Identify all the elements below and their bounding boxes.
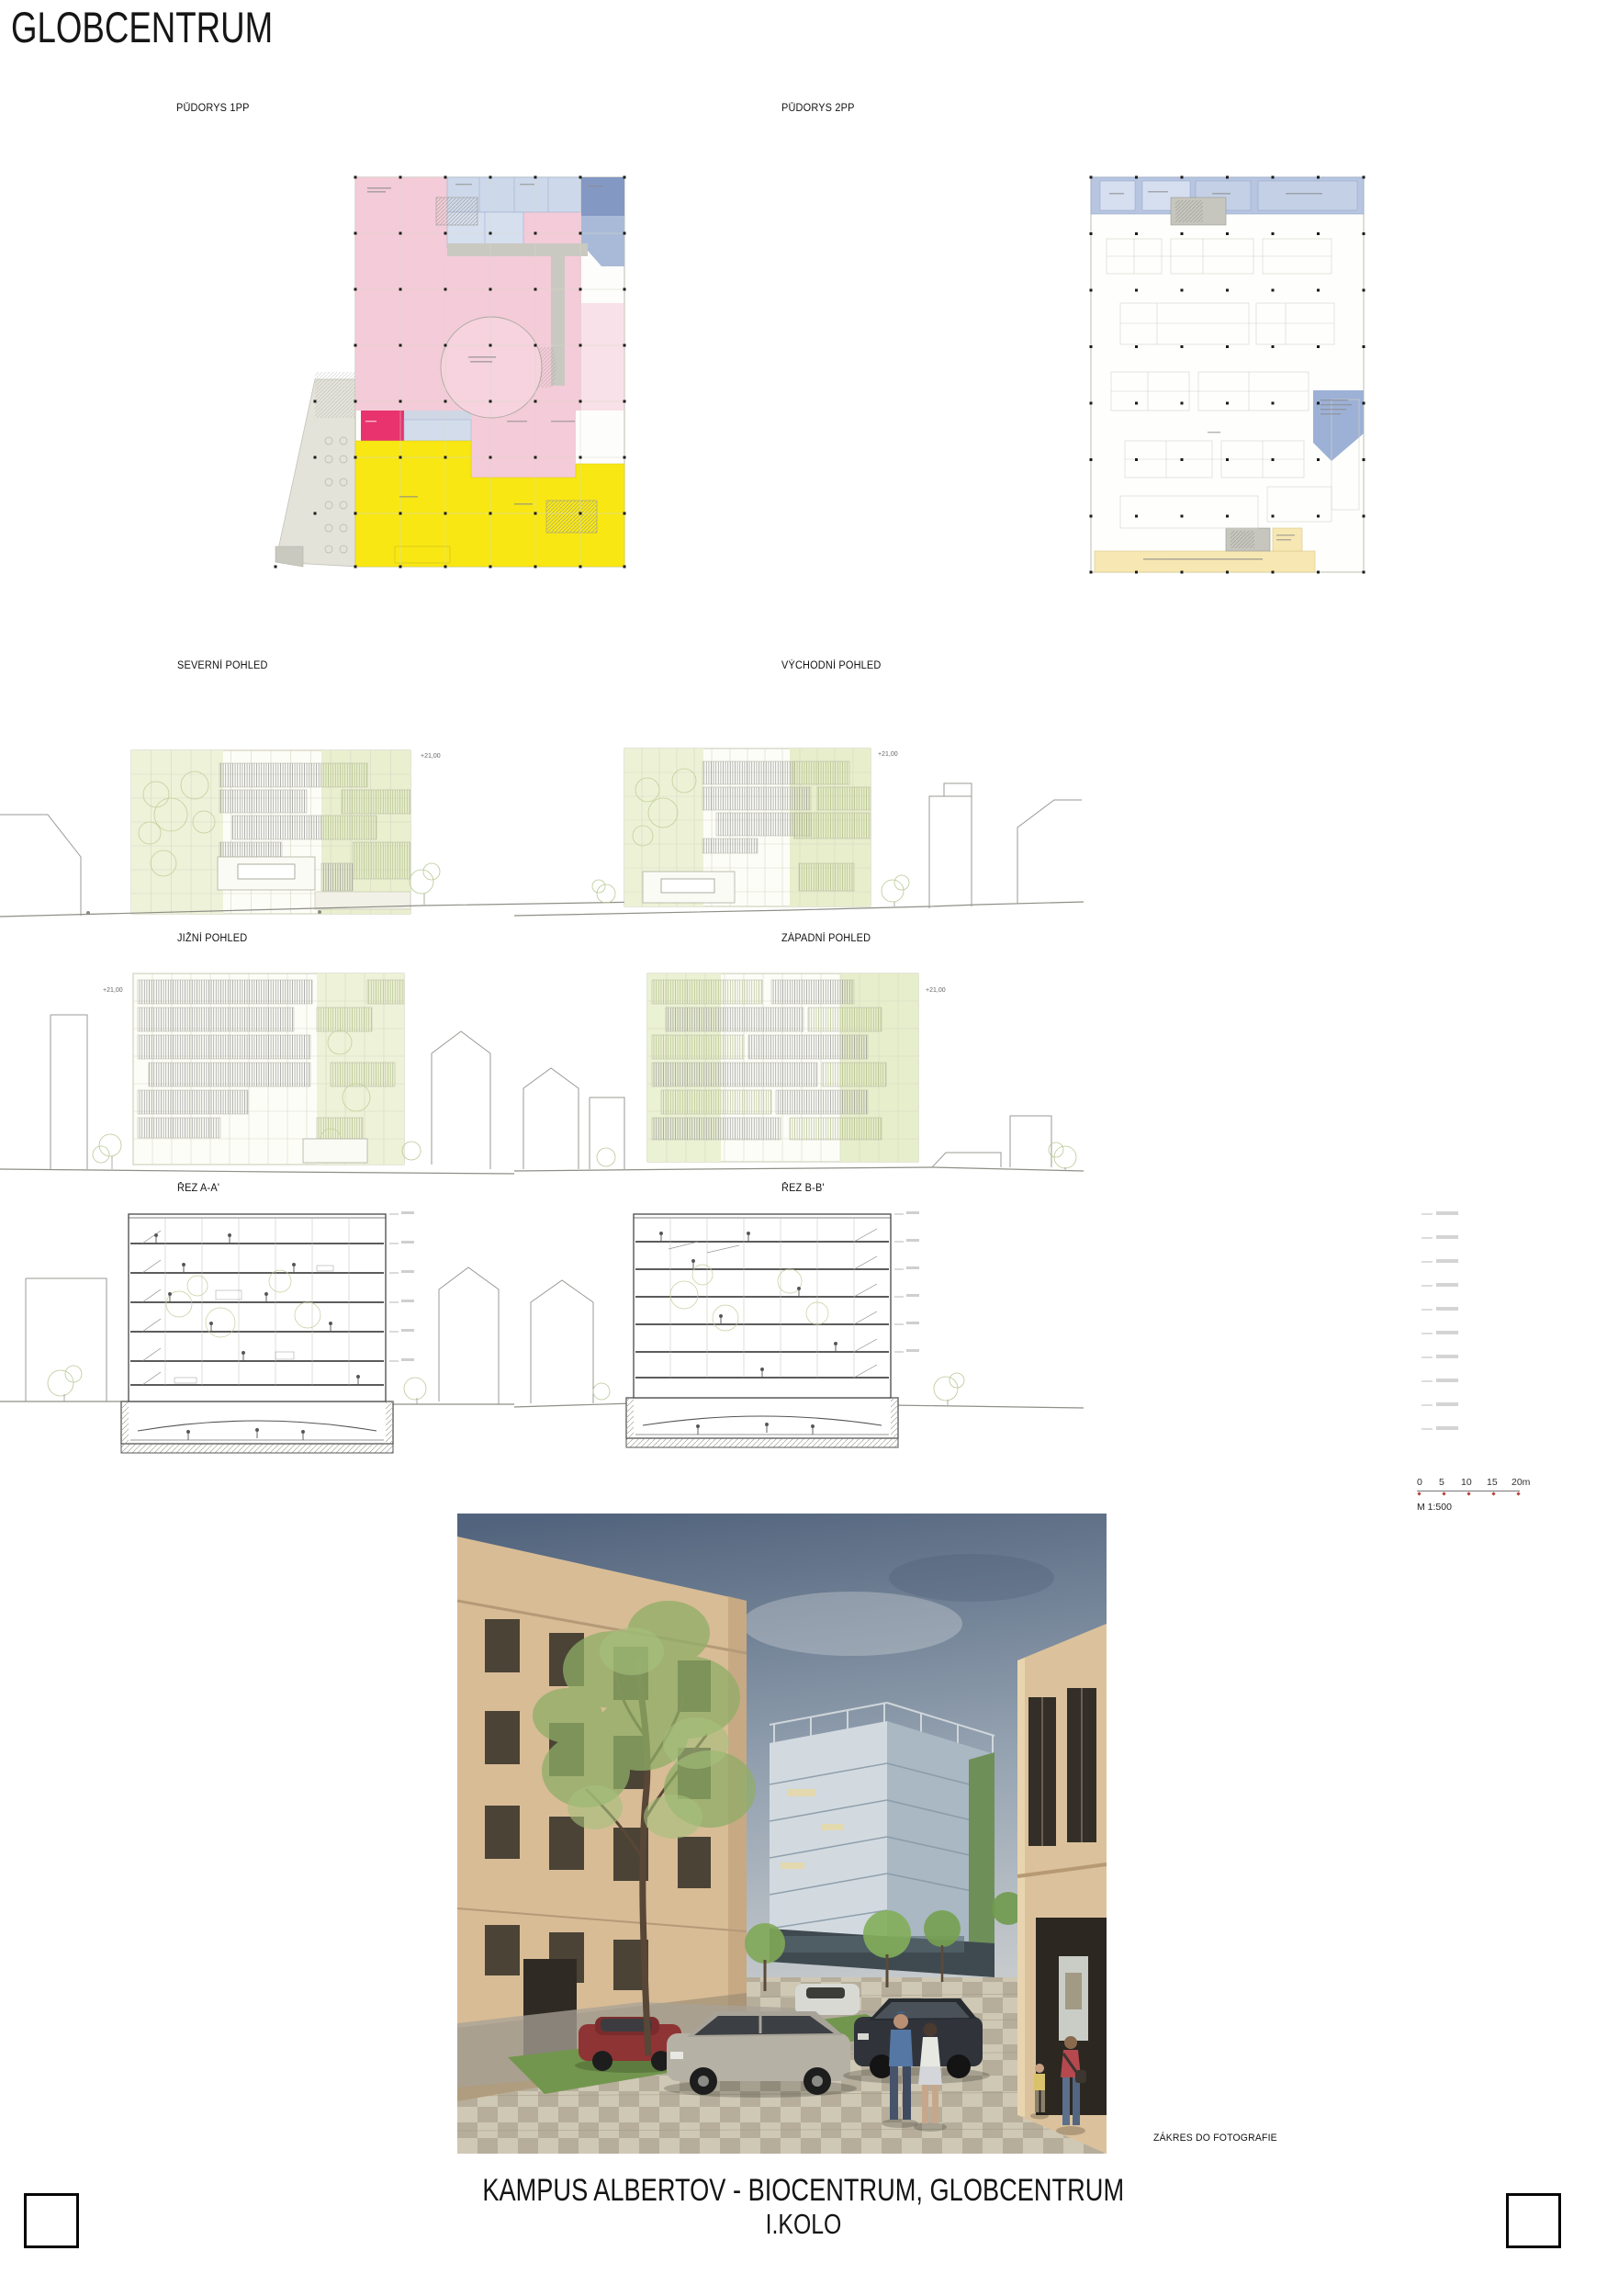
context-building-left [0,815,81,916]
elevation-north-label: SEVERNÍ POHLED [177,660,268,671]
ground-line [0,1169,514,1174]
entrance [303,1139,367,1163]
scale-tick-label: 20m [1511,1477,1530,1488]
elevation-east: +21,00 [514,675,1084,941]
presentation-board: GLOBCENTRUM PŮDORYS 1PP PŮDORYS 2PP SEVE… [0,0,1607,2296]
basement-wall-right [891,1398,898,1438]
plan-stair-core-yellow [546,501,597,533]
context-building-left [523,1068,579,1169]
footer-round: I.KOLO [161,2209,1446,2241]
elevation-east-label: VÝCHODNÍ POHLED [781,660,881,671]
context-building-left [51,1015,87,1169]
basement-wall-right [386,1401,393,1444]
plan2-core-bottom-stair [1231,531,1254,548]
scale-ratio: M 1:500 [1417,1502,1545,1513]
section-base-slab [626,1438,898,1447]
floor-plan-2pp [1056,165,1405,588]
plan-stair-core-top [436,197,478,225]
context-terrace-right [932,1153,1001,1167]
plan2-zone-blue-top [1091,177,1364,214]
scale-bar-line [1417,1491,1545,1496]
context-building-left [26,1278,107,1401]
elevation-south: +21,00 [0,951,514,1189]
section-a [0,1194,514,1479]
section-base-slab [121,1444,393,1453]
entrance [643,872,735,903]
context-building-right [929,783,972,908]
ground-line-right [891,1405,1084,1408]
plan-1pp-label: PŮDORYS 1PP [176,103,250,114]
scale-tick-label: 5 [1439,1477,1444,1488]
level-dashes [389,1211,414,1361]
context-building-far-right [1017,800,1082,904]
level-annotation: +21,00 [878,751,898,758]
plan-zone-magenta [361,411,404,441]
scale-bar-numbers: 0 5 10 15 20m [1417,1477,1545,1489]
level-annotation: +21,00 [421,753,441,760]
plan2-footprint [1091,177,1364,572]
basement-wall-left [121,1401,129,1444]
ground-line-left [514,1403,634,1407]
context-building-right [432,1031,490,1169]
corner-square-left [24,2193,79,2248]
photo-caption: ZÁKRES DO FOTOGRAFIE [1153,2133,1277,2144]
section-basement [626,1398,898,1438]
section-b [514,1194,1084,1479]
scale-bar: 0 5 10 15 20m M 1:500 [1417,1477,1545,1513]
plan2-core-top-stair [1175,200,1203,222]
context-building-right [1010,1116,1051,1167]
context-building-left2 [590,1097,624,1169]
ground-line [514,1167,1084,1171]
level-annotation: +21,00 [103,987,123,994]
floor-plan-1pp [239,165,643,579]
elevation-west: +21,00 [514,951,1084,1189]
facade-green-left [131,750,223,914]
context-building-left [531,1280,593,1403]
scale-tick-label: 10 [1461,1477,1472,1488]
basement-wall-left [626,1398,634,1438]
section-building [129,1214,386,1401]
photo-cloud-dark [889,1554,1054,1602]
section-b-level-marks [1422,1205,1532,1453]
board-footer: KAMPUS ALBERTOV - BIOCENTRUM, GLOBCENTRU… [0,2173,1607,2241]
footer-project-title: KAMPUS ALBERTOV - BIOCENTRUM, GLOBCENTRU… [483,2173,1125,2208]
plan-terrace [275,372,358,567]
photo-passage-building [1065,1973,1082,2009]
entrance [218,857,315,890]
corner-square-right [1506,2193,1561,2248]
photomontage [457,1514,1107,2154]
level-annotation: +21,00 [926,987,946,994]
level-dashes [894,1211,919,1352]
plan-rooms-blue-small [404,420,471,441]
photo-green-facade [969,1752,995,1947]
context-building-right [439,1267,499,1404]
photo-cloud [742,1592,962,1656]
photo-car-white [795,1984,860,2015]
scale-tick-label: 0 [1417,1477,1422,1488]
board-title: GLOBCENTRUM [11,2,273,52]
scale-tick-label: 15 [1487,1477,1498,1488]
plan-2pp-label: PŮDORYS 2PP [781,103,855,114]
